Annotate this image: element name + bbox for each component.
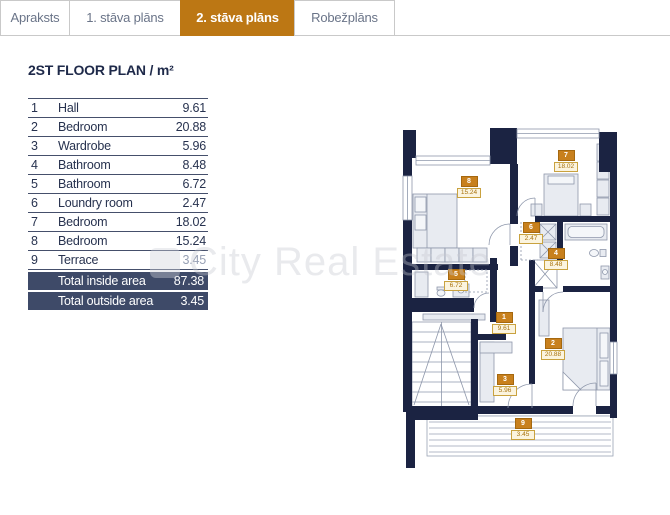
- table-row: 5Bathroom6.72: [28, 175, 208, 194]
- floor-plan-svg: [393, 112, 625, 468]
- table-row: 7Bedroom18.02: [28, 213, 208, 232]
- room-badge-laundry: 62.47: [519, 222, 543, 244]
- tab-robezplans[interactable]: Robežplāns: [294, 0, 395, 36]
- room-badge-terrace: 93.45: [511, 418, 535, 440]
- page-title: 2ST FLOOR PLAN / m²: [28, 62, 174, 78]
- total-inside-row: Total inside area87.38: [28, 272, 208, 290]
- room-badge-wardrobe: 35.96: [493, 374, 517, 396]
- table-row: 8Bedroom15.24: [28, 232, 208, 251]
- tab-apraksts[interactable]: Apraksts: [0, 0, 70, 36]
- table-row: 1Hall9.61: [28, 99, 208, 118]
- room-badge-hall: 19.61: [492, 312, 516, 334]
- table-row: 4Bathroom8.48: [28, 156, 208, 175]
- room-badge-bedroom-2: 220.88: [541, 338, 565, 360]
- room-badge-bedroom-7: 718.02: [554, 150, 578, 172]
- room-badge-bathroom-4: 48.48: [544, 248, 568, 270]
- tab-bar: Apraksts 1. stāva plāns 2. stāva plāns R…: [0, 0, 395, 36]
- table-row: 2Bedroom20.88: [28, 118, 208, 137]
- floor-plan: 19.61 220.88 35.96 48.48 56.72 62.47 718…: [393, 112, 625, 468]
- room-badge-bathroom-5: 56.72: [444, 269, 468, 291]
- table-row: 9Terrace3.45: [28, 251, 208, 270]
- table-row: 6Loundry room2.47: [28, 194, 208, 213]
- room-area-table: 1Hall9.61 2Bedroom20.88 3Wardrobe5.96 4B…: [28, 98, 208, 310]
- listing-floorplan-page: Apraksts 1. stāva plāns 2. stāva plāns R…: [0, 0, 670, 515]
- room-badge-bedroom-8: 815.24: [457, 176, 481, 198]
- tab-1-stava-plans[interactable]: 1. stāva plāns: [69, 0, 181, 36]
- tab-2-stava-plans[interactable]: 2. stāva plāns: [180, 0, 295, 36]
- total-outside-row: Total outside area3.45: [28, 292, 208, 310]
- stairs: [412, 322, 471, 408]
- table-row: 3Wardrobe5.96: [28, 137, 208, 156]
